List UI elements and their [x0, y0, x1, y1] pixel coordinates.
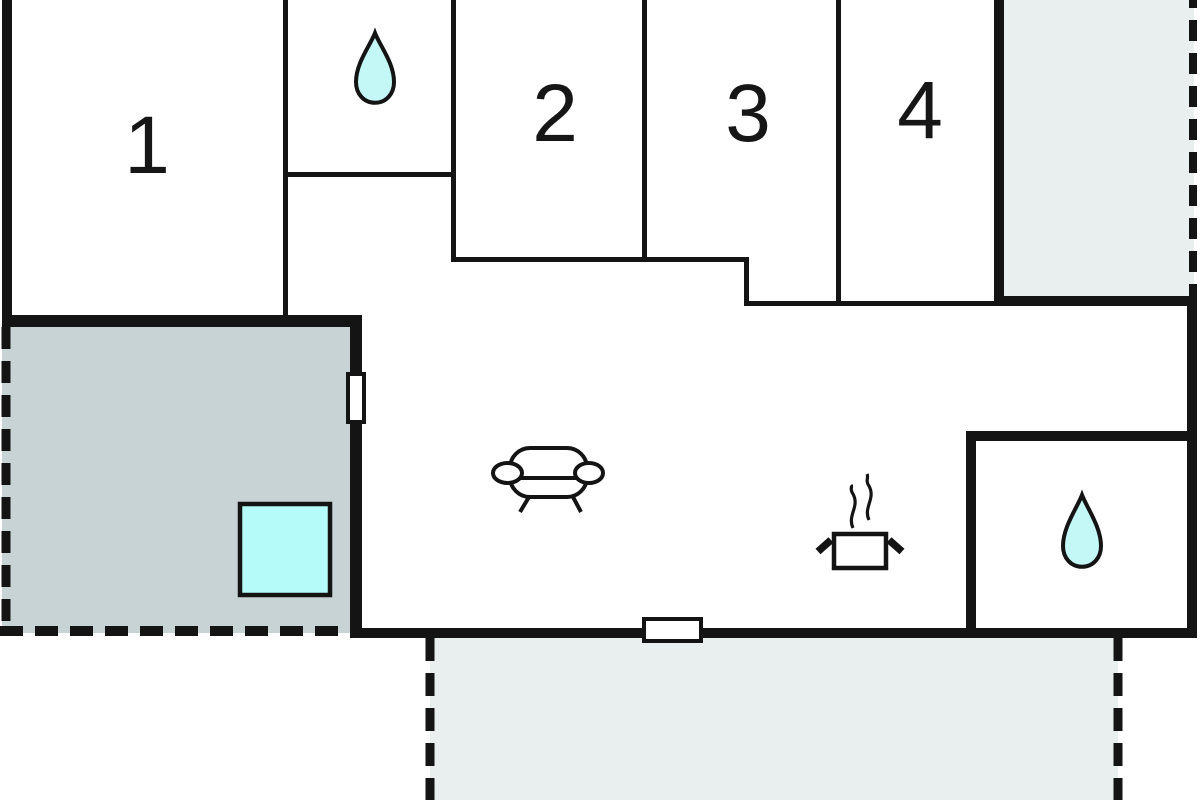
svg-text:4: 4	[897, 65, 943, 156]
svg-text:1: 1	[124, 100, 170, 191]
svg-text:2: 2	[532, 68, 578, 159]
svg-text:3: 3	[725, 68, 771, 159]
